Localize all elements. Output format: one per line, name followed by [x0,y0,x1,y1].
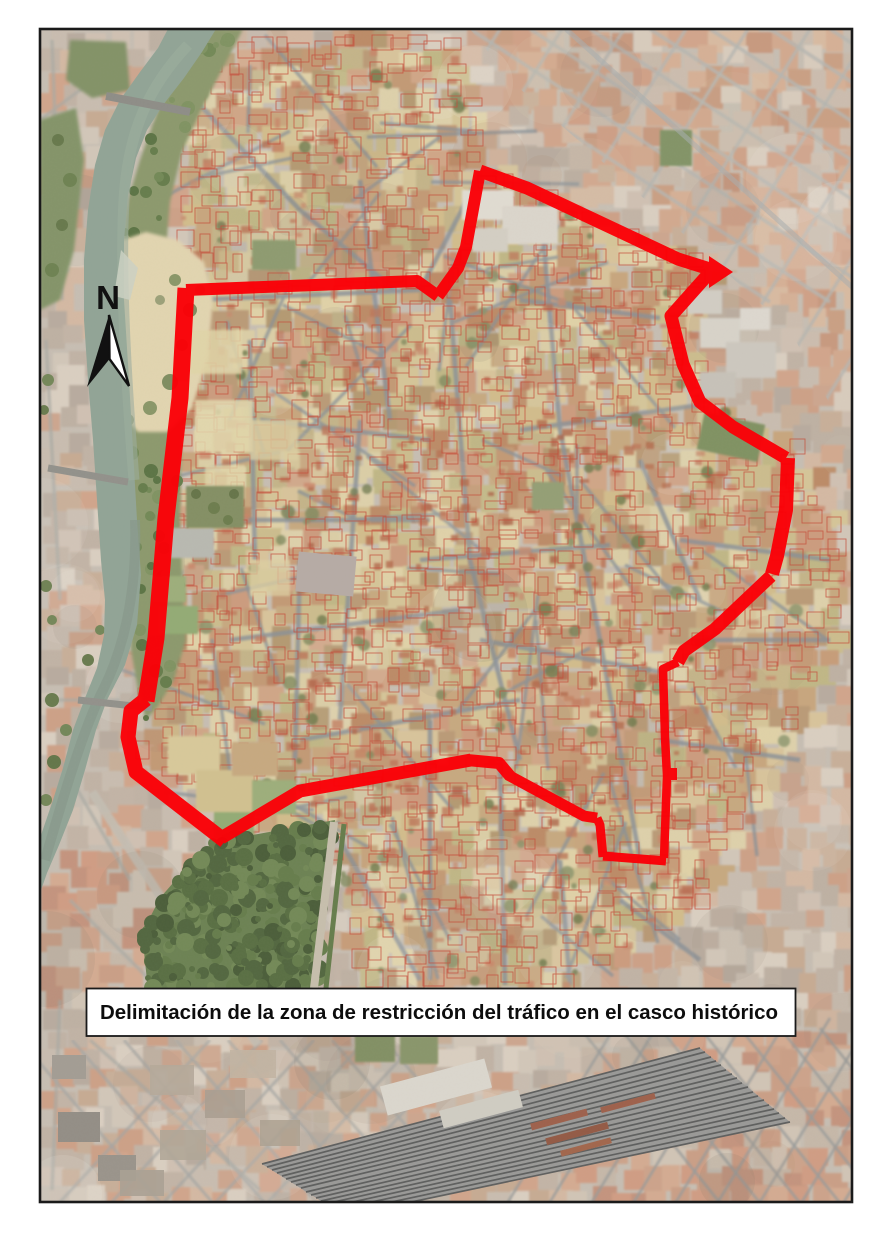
svg-text:N: N [96,279,120,316]
svg-text:Delimitación de la zona de res: Delimitación de la zona de restricción d… [100,1002,778,1024]
